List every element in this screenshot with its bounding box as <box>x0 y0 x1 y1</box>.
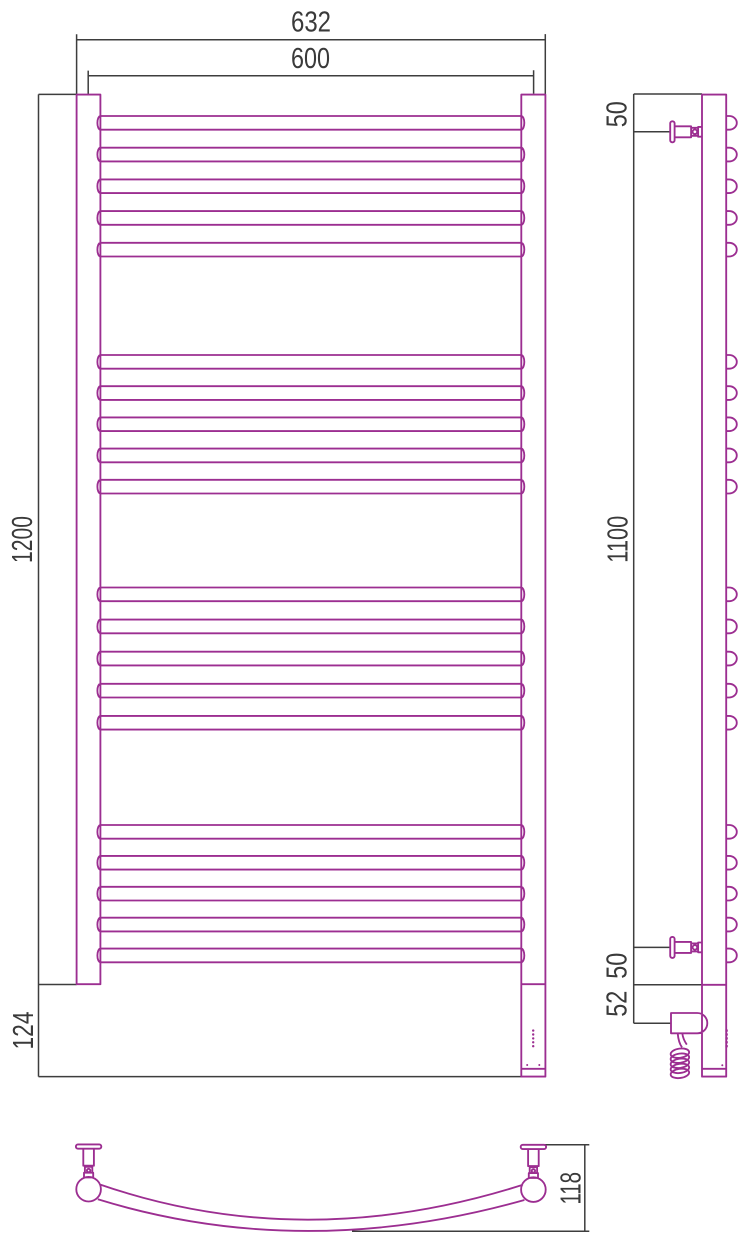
svg-text:600: 600 <box>291 43 330 75</box>
svg-text:118: 118 <box>555 1172 587 1205</box>
svg-text:124: 124 <box>8 1011 40 1049</box>
svg-text:50: 50 <box>602 953 634 979</box>
svg-text:52: 52 <box>602 991 634 1017</box>
svg-text:632: 632 <box>291 6 331 38</box>
svg-text:1200: 1200 <box>7 516 39 563</box>
svg-text:1100: 1100 <box>602 516 634 563</box>
svg-text:50: 50 <box>602 101 634 127</box>
